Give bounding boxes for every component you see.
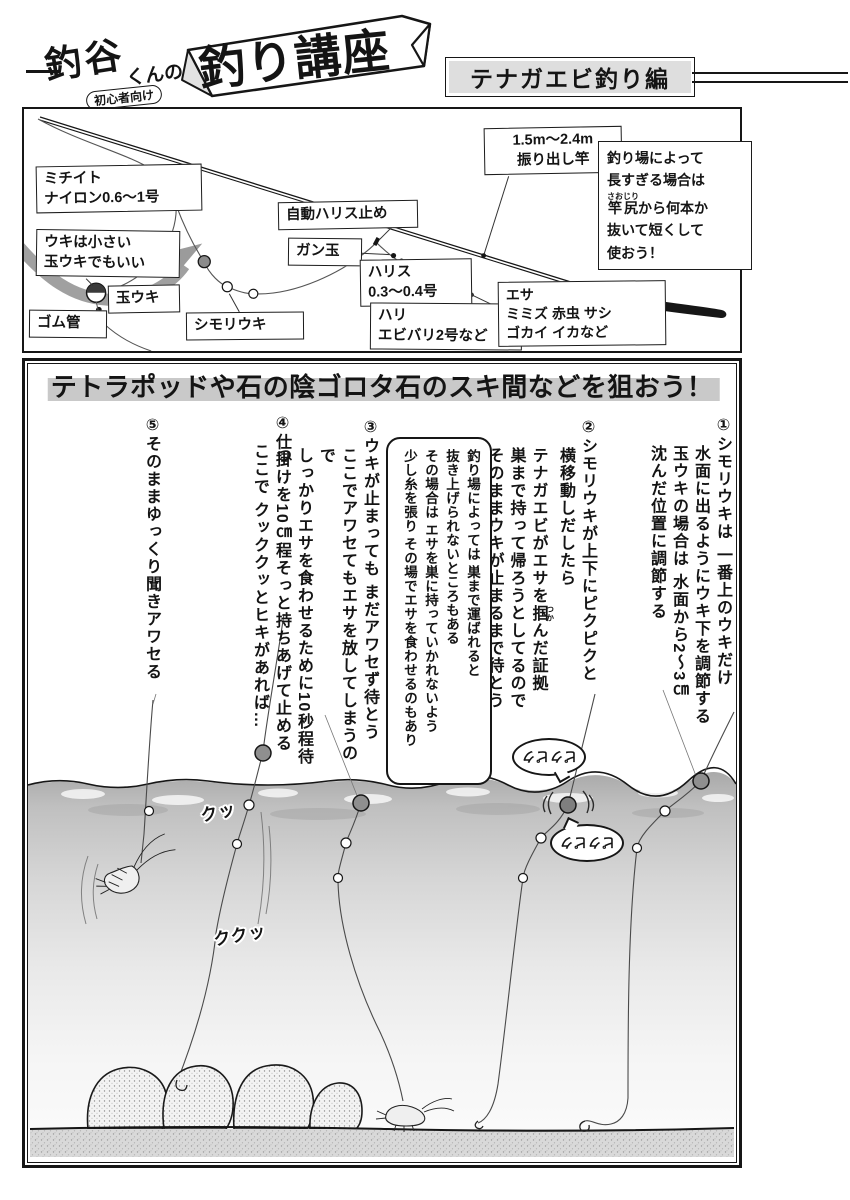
split-shot-1 xyxy=(391,253,396,258)
step-5: ⑤そのままゆっくり聞きアワセる xyxy=(140,415,162,725)
guide-panel: テトラポッドや石の陰ゴロタ石のスキ間などを狙おう！ ①シモリウキは 一番上のウキ… xyxy=(22,358,742,1168)
rig-diagram-panel: ミチイト ナイロン0.6〜1号 ウキは小さい 玉ウキでもいい 玉ウキ ゴム管 シ… xyxy=(22,107,742,353)
label-rubber-tube: ゴム管 xyxy=(29,310,107,338)
note-line2: 抜き上げられないところもある xyxy=(441,449,462,773)
rod-note-line1: 釣り場によって xyxy=(607,147,743,169)
step3-line1: ③ウキが止まっても まだアワセず待とう xyxy=(358,417,380,777)
step2-line2: 横移動しだしたら xyxy=(554,417,576,757)
step4-line1: ④仕掛けを10㎝程そっと持ちあげて止める xyxy=(270,413,292,768)
guide-headline: テトラポッドや石の陰ゴロタ石のスキ間などを狙おう！ xyxy=(51,367,714,404)
pikupiku-bubble-2: ピクピク xyxy=(550,824,624,862)
label-split-shot: ガン玉 xyxy=(288,238,362,266)
step-2: ②シモリウキが上下にピクピクと 横移動しだしたら テナガエビがエサを掴つかんだ証… xyxy=(483,417,599,757)
label-ball-float: 玉ウキ xyxy=(108,284,180,313)
label-bait: エサ ミミズ 赤虫 サシ ゴカイ イカなど xyxy=(498,280,667,346)
label-main-line: ミチイト ナイロン0.6〜1号 xyxy=(36,164,203,214)
rod-note-line3: 竿尻さおじりから何本か xyxy=(607,192,743,219)
step-4: ④仕掛けを10㎝程そっと持ちあげて止める ここで クッククッとヒキがあれば… xyxy=(248,413,292,768)
side-note-box: 釣り場によっては 巣まで運ばれると 抜き上げられないところもある その場合は エ… xyxy=(386,437,492,785)
note-line4: 少し糸を張り その場でエサを食わせるのもあり xyxy=(399,449,420,773)
logo-author: 釣谷 xyxy=(40,24,127,90)
rod-note-line5: 使おう！ xyxy=(607,242,743,264)
step1-line2: 水面に出るようにウキ下を調節する xyxy=(689,415,711,760)
pikupiku-bubble-1: ピクピク xyxy=(512,738,586,776)
step2-line4: 巣まで持って帰ろうとしてるので xyxy=(505,417,527,757)
step5-line1: ⑤そのままゆっくり聞きアワセる xyxy=(140,415,162,725)
header-rule-2 xyxy=(692,81,848,83)
label-shimori-float: シモリウキ xyxy=(186,311,304,340)
step4-line2: ここで クッククッとヒキがあれば… xyxy=(248,413,270,768)
step1-line4: 沈んだ位置に調節する xyxy=(645,415,667,760)
note-line3: その場合は エサを巣に持っていかれないよう xyxy=(420,449,441,773)
pikupiku-text-2: ピクピク xyxy=(559,834,615,853)
ground xyxy=(30,1129,734,1157)
step-1: ①シモリウキは 一番上のウキだけ 水面に出るようにウキ下を調節する 玉ウキの場合… xyxy=(645,415,733,760)
step2-line3: テナガエビがエサを掴つかんだ証拠 xyxy=(527,417,555,757)
underwater-illustration xyxy=(28,364,736,1162)
shimori-float-small-1 xyxy=(222,282,232,292)
step1-line1: ①シモリウキは 一番上のウキだけ xyxy=(711,415,733,760)
rod-note-line2: 長すぎる場合は xyxy=(607,169,743,191)
label-float-note: ウキは小さい 玉ウキでもいい xyxy=(36,229,181,278)
edition-banner: テナガエビ釣り編 xyxy=(445,57,695,97)
label-leader: ハリス 0.3〜0.4号 xyxy=(360,258,473,307)
label-line-stopper: 自動ハリス止め xyxy=(278,200,418,230)
pikupiku-text-1: ピクピク xyxy=(521,748,577,767)
headline-text: テトラポッドや石の陰ゴロタ石のスキ間などを狙おう！ xyxy=(51,372,714,402)
header-rule-1 xyxy=(692,72,848,74)
step2-line1: ②シモリウキが上下にピクピクと xyxy=(576,417,598,757)
manga-page: 釣谷 くんの 釣り講座 初心者向け テナガエビ釣り編 xyxy=(0,0,850,1200)
shimori-float-large xyxy=(198,256,210,268)
note-line1: 釣り場によっては 巣まで運ばれると xyxy=(462,449,483,773)
step3-line2: ここでアワセてもエサを放してしまうので xyxy=(314,417,358,777)
rod-length-note: 釣り場によって 長すぎる場合は 竿尻さおじりから何本か 抜いて短くして 使おう！ xyxy=(598,141,752,270)
rod-note-line4: 抜いて短くして xyxy=(607,219,743,241)
step1-line3: 玉ウキの場合は 水面から2〜3㎝ xyxy=(667,415,689,760)
shimori-float-small-2 xyxy=(249,289,258,298)
